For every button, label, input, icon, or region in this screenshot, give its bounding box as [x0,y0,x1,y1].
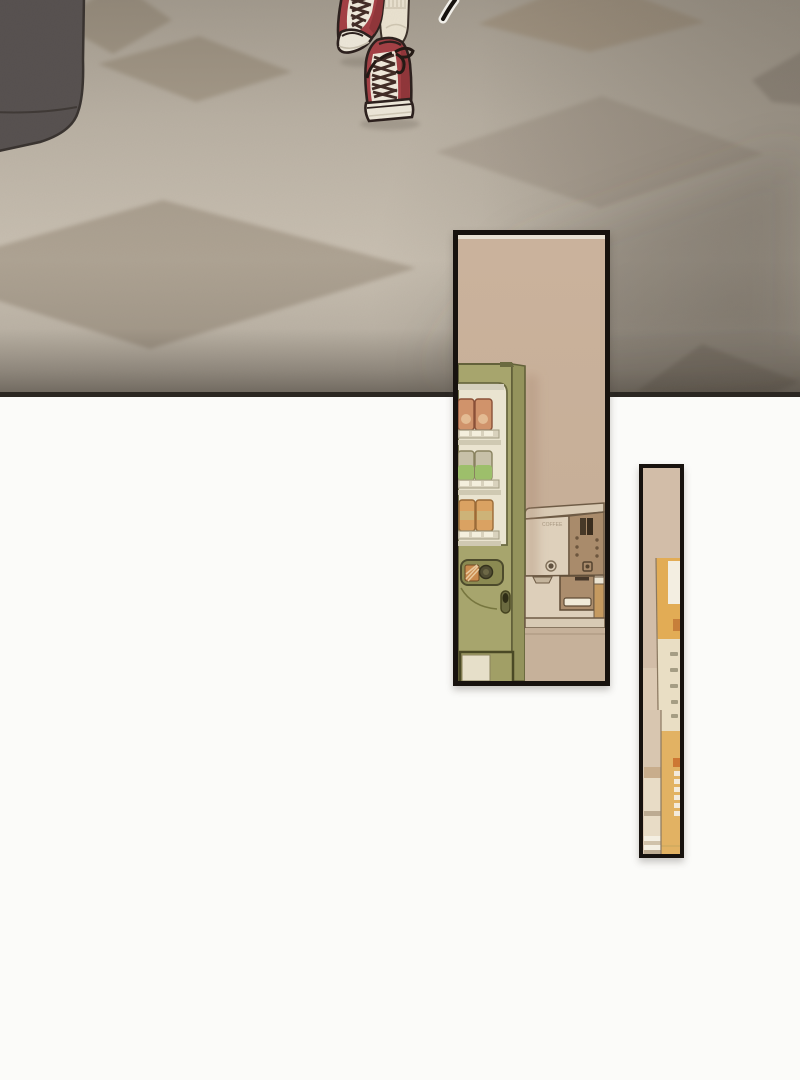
svg-text:COFFEE: COFFEE [542,522,563,528]
